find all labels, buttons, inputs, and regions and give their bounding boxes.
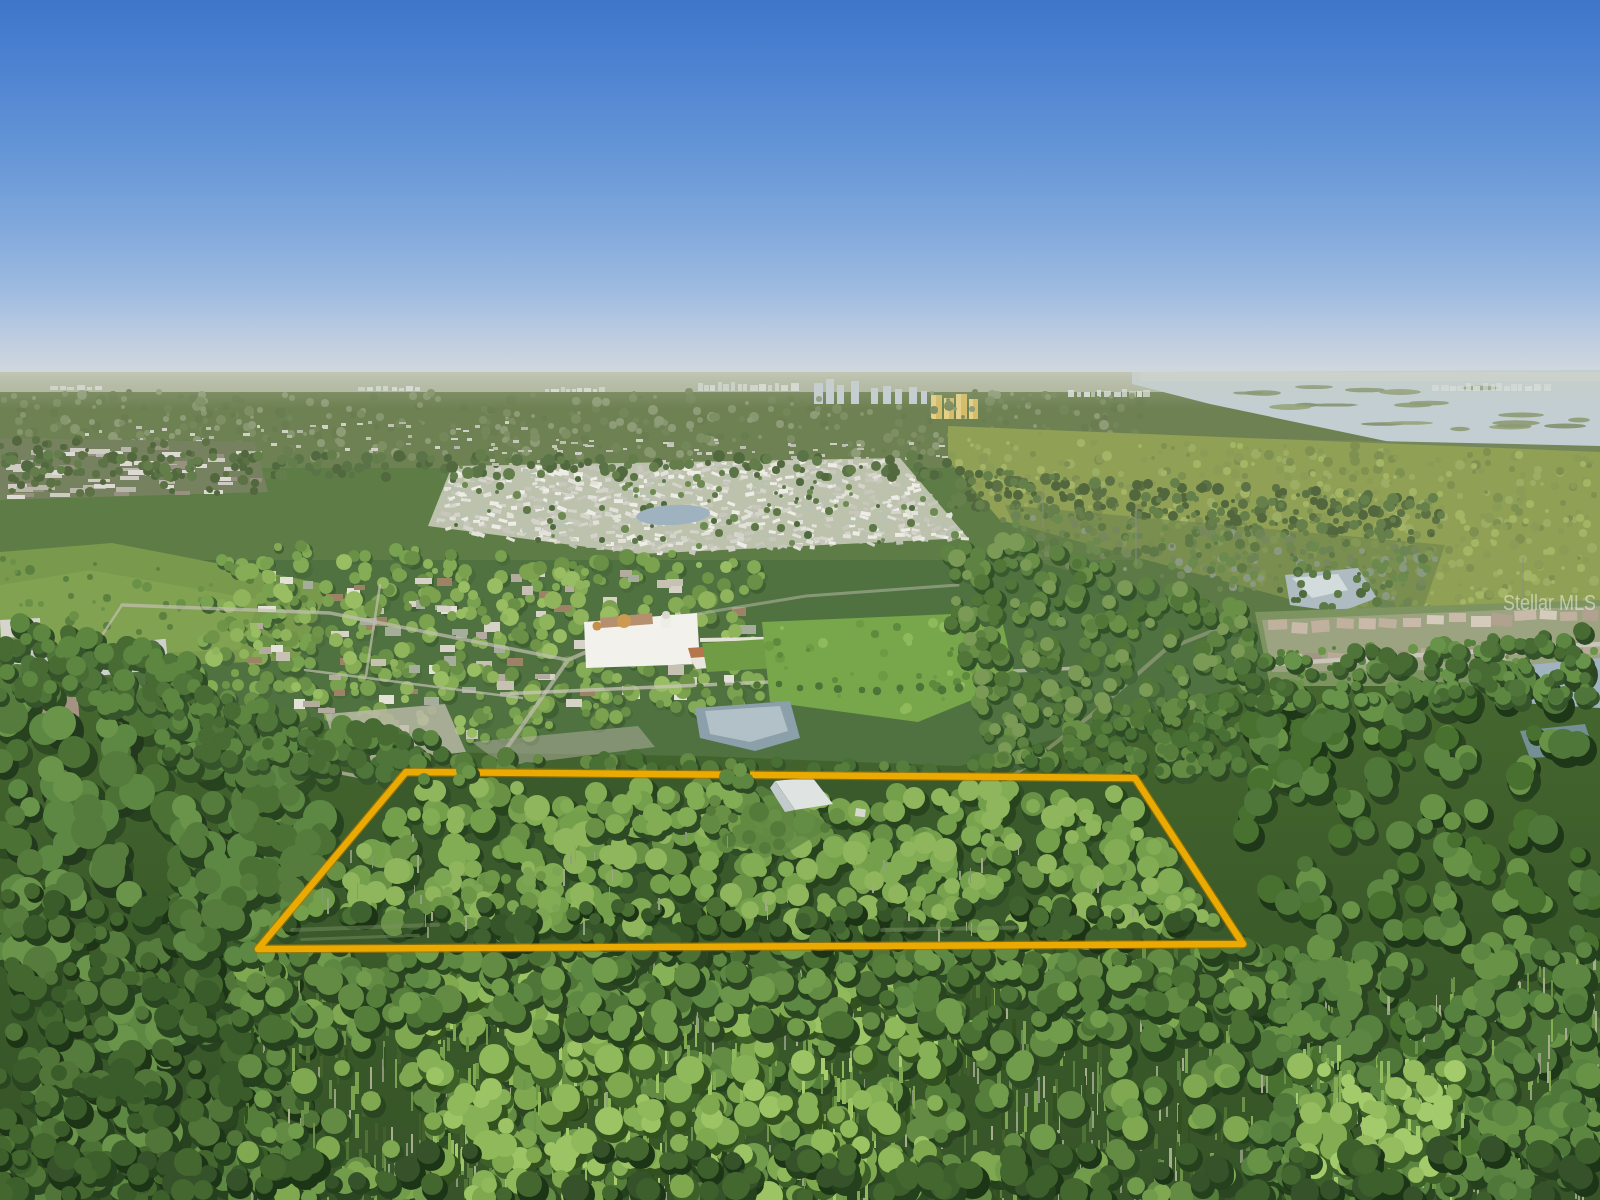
svg-text:Stellar MLS: Stellar MLS: [1503, 590, 1596, 615]
